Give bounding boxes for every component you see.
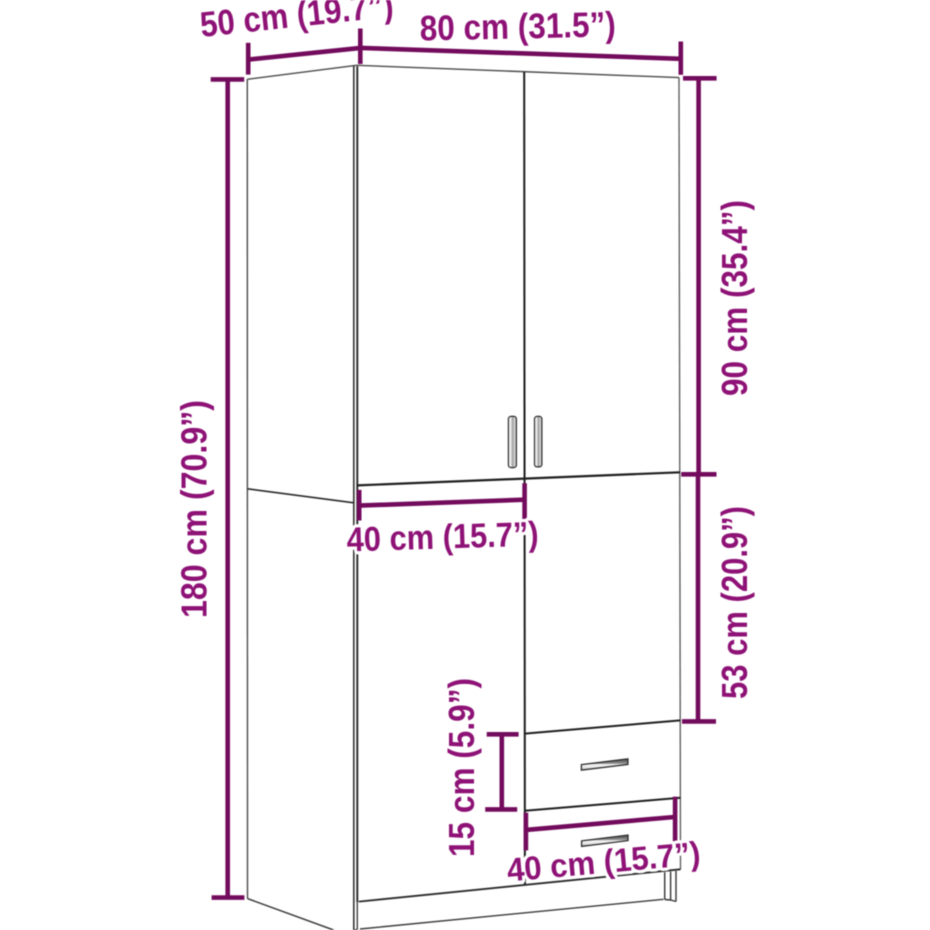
svg-text:40 cm (15.7”): 40 cm (15.7”) xyxy=(346,515,539,559)
svg-text:53 cm (20.9”): 53 cm (20.9”) xyxy=(714,506,755,699)
svg-text:80 cm (31.5”): 80 cm (31.5”) xyxy=(419,4,616,48)
svg-text:90 cm (35.4”): 90 cm (35.4”) xyxy=(714,200,755,396)
svg-text:15 cm (5.9”): 15 cm (5.9”) xyxy=(441,678,482,857)
svg-text:180 cm (70.9”): 180 cm (70.9”) xyxy=(174,400,215,618)
